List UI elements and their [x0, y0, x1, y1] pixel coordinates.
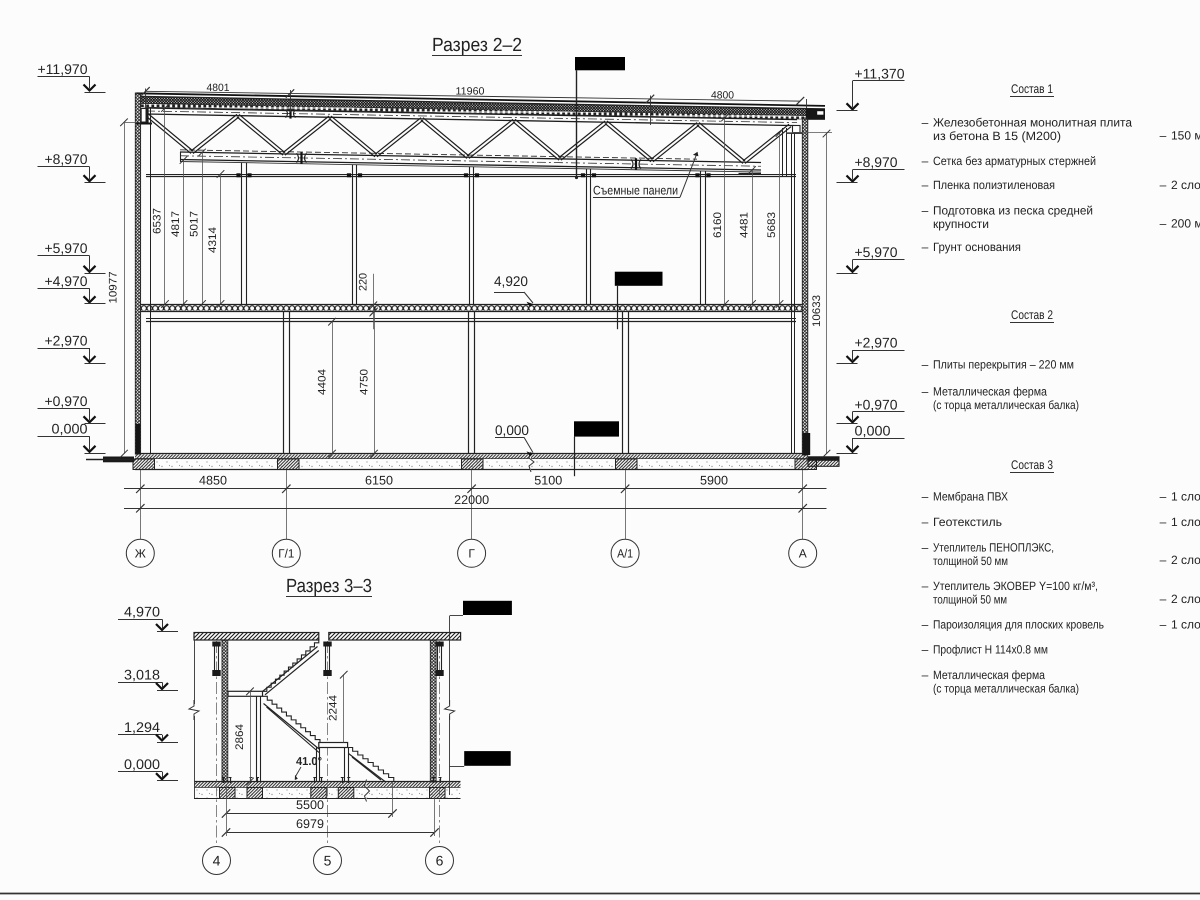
svg-text:–: – [922, 643, 929, 657]
svg-text:Геотекстиль: Геотекстиль [933, 515, 1002, 529]
svg-text:4314: 4314 [207, 227, 219, 253]
svg-text:(с торца металлическая балка): (с торца металлическая балка) [933, 681, 1079, 695]
svg-text:крупности: крупности [933, 217, 989, 231]
svg-text:–: – [922, 178, 929, 192]
svg-text:0,000: 0,000 [52, 421, 88, 437]
svg-text:4817: 4817 [170, 211, 182, 237]
svg-text:0,000: 0,000 [124, 756, 160, 772]
svg-text:Плиты перекрытия – 220 мм: Плиты перекрытия – 220 мм [933, 358, 1074, 372]
svg-text:2 слоя: 2 слоя [1171, 592, 1200, 606]
svg-text:А/1: А/1 [617, 547, 633, 561]
svg-text:0,000: 0,000 [495, 422, 529, 438]
svg-text:5017: 5017 [189, 211, 201, 237]
svg-text:–: – [922, 515, 929, 529]
svg-text:+2,970: +2,970 [855, 335, 898, 351]
svg-text:Пароизоляция для плоских крове: Пароизоляция для плоских кровель [933, 618, 1104, 632]
svg-text:+11,970: +11,970 [38, 61, 88, 77]
svg-text:А: А [799, 547, 807, 561]
svg-text:Г: Г [468, 547, 475, 561]
svg-text:10977: 10977 [108, 272, 120, 304]
svg-text:5500: 5500 [296, 798, 324, 812]
svg-text:5683: 5683 [766, 212, 778, 238]
svg-text:4750: 4750 [359, 369, 371, 395]
svg-text:1 слой: 1 слой [1171, 490, 1200, 504]
svg-text:0,000: 0,000 [855, 423, 891, 439]
svg-text:1 слой: 1 слой [1171, 618, 1200, 632]
svg-text:6150: 6150 [365, 474, 393, 488]
svg-text:5100: 5100 [534, 474, 562, 488]
svg-text:Съемные панели: Съемные панели [593, 184, 678, 198]
svg-text:22000: 22000 [454, 493, 489, 507]
svg-text:Г/1: Г/1 [278, 547, 294, 561]
svg-text:–: – [1160, 553, 1167, 567]
svg-text:4: 4 [213, 853, 221, 869]
svg-text:–: – [922, 579, 929, 593]
svg-text:4,970: 4,970 [124, 604, 160, 620]
svg-text:+4,970: +4,970 [45, 273, 88, 289]
svg-text:–: – [922, 240, 929, 254]
svg-text:Состав 2: Состав 2 [1011, 308, 1053, 322]
svg-text:4481: 4481 [739, 212, 751, 238]
svg-text:2244: 2244 [328, 695, 340, 721]
svg-text:5900: 5900 [700, 474, 728, 488]
svg-text:–: – [922, 490, 929, 504]
svg-text:10633: 10633 [811, 295, 823, 327]
svg-text:Ж: Ж [135, 547, 146, 561]
svg-text:–: – [922, 204, 929, 218]
svg-text:Разрез 2–2: Разрез 2–2 [432, 35, 522, 56]
svg-text:+0,970: +0,970 [45, 393, 88, 409]
svg-text:+0,970: +0,970 [855, 396, 898, 412]
svg-text:из бетона В 15 (М200): из бетона В 15 (М200) [933, 129, 1061, 143]
svg-text:41.0°: 41.0° [296, 756, 322, 768]
svg-text:+2,970: +2,970 [45, 333, 88, 349]
svg-text:толщиной 50 мм: толщиной 50 мм [933, 554, 1008, 568]
svg-text:–: – [1160, 618, 1167, 632]
svg-text:(с торца металлическая балка): (с торца металлическая балка) [933, 398, 1079, 412]
svg-text:+5,970: +5,970 [45, 240, 88, 256]
svg-text:2 слоя: 2 слоя [1171, 553, 1200, 567]
svg-text:+11,370: +11,370 [855, 66, 905, 82]
svg-text:2864: 2864 [234, 724, 246, 750]
svg-text:–: – [1160, 490, 1167, 504]
svg-text:Пленка полиэтиленовая: Пленка полиэтиленовая [933, 178, 1055, 192]
svg-text:толщиной 50 мм: толщиной 50 мм [933, 592, 1007, 606]
svg-text:+5,970: +5,970 [855, 244, 898, 260]
svg-text:Профлист Н 114х0.8 мм: Профлист Н 114х0.8 мм [933, 643, 1048, 657]
svg-text:6160: 6160 [712, 212, 724, 238]
svg-text:–: – [922, 385, 929, 399]
svg-text:1,294: 1,294 [124, 719, 160, 735]
svg-text:6979: 6979 [296, 817, 324, 831]
svg-text:6537: 6537 [152, 208, 164, 234]
svg-text:Состав 1: Состав 1 [1011, 82, 1053, 96]
svg-text:200 мм: 200 мм [1171, 217, 1200, 231]
svg-text:–: – [922, 358, 929, 372]
svg-text:6: 6 [436, 853, 444, 869]
svg-text:Грунт основания: Грунт основания [933, 240, 1021, 254]
svg-text:–: – [922, 668, 929, 682]
svg-text:3,018: 3,018 [124, 667, 160, 683]
svg-text:Утеплитель ЭКОВЕР Y=100 кг/м³,: Утеплитель ЭКОВЕР Y=100 кг/м³, [933, 579, 1098, 593]
svg-text:Металлическая ферма: Металлическая ферма [933, 668, 1045, 682]
svg-text:–: – [1160, 592, 1167, 606]
svg-text:4850: 4850 [199, 474, 227, 488]
svg-text:2 слоя: 2 слоя [1171, 178, 1200, 192]
svg-text:–: – [922, 154, 929, 168]
svg-text:–: – [922, 116, 929, 130]
svg-text:–: – [1160, 178, 1167, 192]
svg-text:150 мм: 150 мм [1171, 129, 1200, 143]
svg-text:Сетка без арматурных стержней: Сетка без арматурных стержней [933, 154, 1096, 168]
svg-text:Состав 3: Состав 3 [1011, 458, 1053, 472]
svg-text:11960: 11960 [456, 86, 485, 98]
svg-text:–: – [922, 618, 929, 632]
svg-text:–: – [922, 541, 929, 555]
svg-text:1 слой: 1 слой [1171, 515, 1200, 529]
svg-text:+8,970: +8,970 [45, 151, 88, 167]
svg-text:Железобетонная монолитная пли: Железобетонная монолитная плита [933, 116, 1132, 130]
svg-text:–: – [1160, 217, 1167, 231]
svg-text:4801: 4801 [207, 82, 230, 94]
svg-text:Мембрана ПВХ: Мембрана ПВХ [933, 490, 1008, 504]
svg-text:4,920: 4,920 [494, 273, 528, 289]
svg-text:220: 220 [358, 273, 370, 291]
svg-text:Разрез 3–3: Разрез 3–3 [286, 576, 372, 597]
svg-text:4404: 4404 [317, 369, 329, 395]
svg-text:Металлическая ферма: Металлическая ферма [933, 385, 1047, 399]
svg-text:–: – [1160, 129, 1167, 143]
svg-text:Утеплитель ПЕНОПЛЭКС,: Утеплитель ПЕНОПЛЭКС, [933, 541, 1054, 555]
svg-text:Подготовка из песка средней: Подготовка из песка средней [933, 204, 1093, 218]
svg-text:4800: 4800 [711, 90, 734, 102]
svg-text:–: – [1160, 515, 1167, 529]
svg-text:5: 5 [324, 853, 332, 869]
svg-text:+8,970: +8,970 [855, 154, 898, 170]
